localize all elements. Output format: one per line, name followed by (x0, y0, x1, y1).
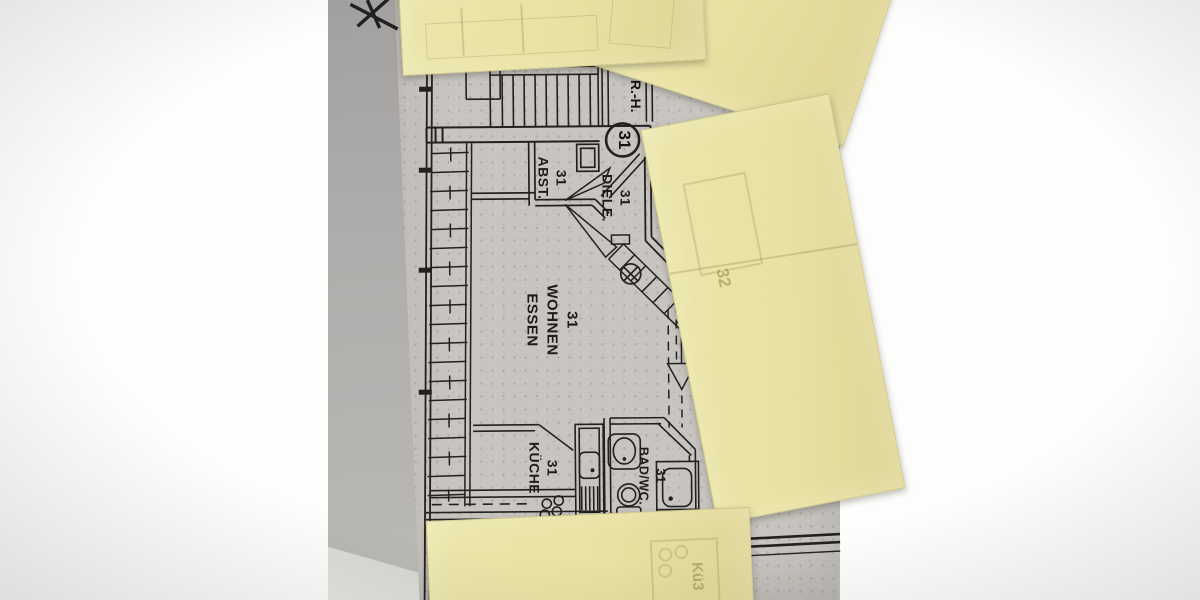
unit-number-badge: 31 (614, 131, 634, 150)
bleed-through-label-32: 32 (712, 267, 735, 289)
room-label-wohnen-essen: 31 WOHNEN ESSEN (522, 284, 581, 355)
sticky-note-bottom: Kü3 (426, 507, 755, 600)
bleed-through-label-kue: Kü3 (688, 562, 706, 591)
bottom-right-plan-fragment (744, 534, 840, 556)
living-room-top-wall (471, 193, 535, 200)
room-label-bad-wc: 31 BAD/WC. (636, 447, 669, 505)
room-label-abst: 31 ABST. (534, 157, 571, 200)
floorplan-drawing (0, 0, 1200, 600)
room-label-diele: 31 DIELE. (598, 174, 635, 222)
north-asterisk-mark (350, 0, 397, 29)
photo-of-floorplan: . TR.-H. 31 31 ABST. 31 DIELE. 31 WOHNEN… (0, 0, 1200, 600)
room-label-kueche: 31 KÜCHE (525, 442, 562, 494)
